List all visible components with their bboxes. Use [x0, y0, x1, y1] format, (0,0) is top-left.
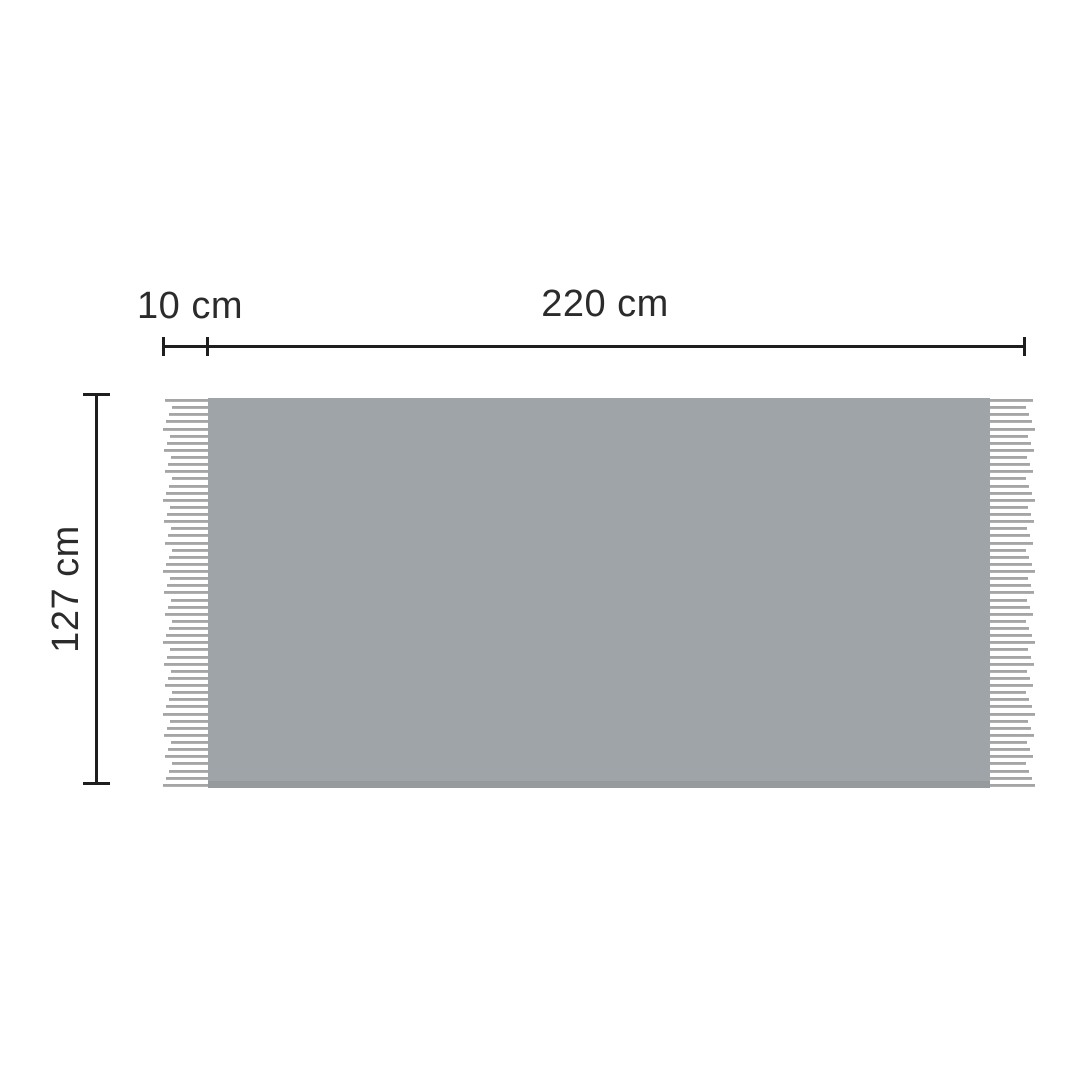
- fringe-strand: [164, 591, 208, 594]
- fringe-strand: [172, 477, 208, 480]
- fringe-strand: [990, 406, 1026, 409]
- fringe-strand: [990, 720, 1028, 723]
- fringe-strand: [990, 698, 1029, 701]
- fringe-strand: [990, 705, 1032, 708]
- blanket-fringe-right: [990, 399, 1035, 787]
- fringe-strand: [169, 556, 208, 559]
- fringe-strand: [166, 777, 208, 780]
- fringe-strand: [163, 499, 208, 502]
- fringe-width-label: 10 cm: [110, 287, 270, 325]
- fringe-strand: [172, 691, 208, 694]
- fringe-strand: [990, 606, 1030, 609]
- fringe-strand: [990, 499, 1035, 502]
- fringe-strand: [172, 406, 208, 409]
- fringe-strand: [990, 506, 1028, 509]
- fringe-strand: [990, 734, 1034, 737]
- fringe-strand: [166, 420, 208, 423]
- fringe-strand: [990, 556, 1029, 559]
- fringe-strand: [168, 534, 208, 537]
- fringe-strand: [163, 570, 208, 573]
- fringe-strand: [990, 784, 1035, 787]
- fringe-strand: [169, 770, 208, 773]
- fringe-strand: [171, 527, 208, 530]
- fringe-strand: [990, 492, 1032, 495]
- fringe-strand: [990, 542, 1033, 545]
- fringe-strand: [171, 741, 208, 744]
- fringe-strand: [990, 534, 1030, 537]
- fringe-strand: [990, 435, 1028, 438]
- fringe-strand: [990, 570, 1035, 573]
- fringe-strand: [990, 485, 1029, 488]
- fringe-strand: [166, 563, 208, 566]
- top-dimension-line: [163, 345, 1026, 348]
- fringe-strand: [990, 777, 1032, 780]
- fringe-strand: [164, 734, 208, 737]
- blanket-body: [208, 398, 990, 788]
- left-dimension-line: [95, 394, 98, 784]
- fringe-strand: [990, 663, 1034, 666]
- fringe-strand: [171, 599, 208, 602]
- fringe-strand: [167, 442, 208, 445]
- fringe-strand: [990, 677, 1030, 680]
- fringe-strand: [167, 727, 208, 730]
- fringe-strand: [166, 634, 208, 637]
- fringe-strand: [990, 513, 1031, 516]
- fringe-strand: [990, 577, 1028, 580]
- fringe-strand: [990, 713, 1035, 716]
- fringe-strand: [169, 485, 208, 488]
- fringe-strand: [990, 770, 1029, 773]
- fringe-strand: [170, 577, 208, 580]
- fringe-strand: [165, 755, 208, 758]
- fringe-strand: [990, 691, 1026, 694]
- fringe-strand: [172, 762, 208, 765]
- fringe-strand: [170, 506, 208, 509]
- height-label: 127 cm: [47, 525, 85, 653]
- fringe-strand: [171, 670, 208, 673]
- fringe-strand: [990, 520, 1034, 523]
- fringe-strand: [172, 620, 208, 623]
- fringe-strand: [165, 542, 208, 545]
- fringe-strand: [163, 784, 208, 787]
- fringe-strand: [990, 549, 1026, 552]
- blanket-fringe-left: [163, 399, 208, 787]
- fringe-strand: [170, 720, 208, 723]
- fringe-strand: [990, 591, 1034, 594]
- top-dimension-tick-fringe-boundary: [206, 337, 209, 356]
- fringe-strand: [168, 748, 208, 751]
- left-dimension-tick-bottom: [83, 782, 110, 785]
- fringe-strand: [164, 449, 208, 452]
- fringe-strand: [990, 727, 1031, 730]
- fringe-strand: [163, 641, 208, 644]
- fringe-strand: [990, 613, 1033, 616]
- body-width-label: 220 cm: [505, 285, 705, 323]
- fringe-strand: [990, 584, 1031, 587]
- fringe-strand: [165, 613, 208, 616]
- fringe-strand: [169, 698, 208, 701]
- fringe-strand: [990, 470, 1033, 473]
- fringe-strand: [990, 748, 1030, 751]
- fringe-strand: [990, 656, 1031, 659]
- fringe-strand: [990, 684, 1033, 687]
- fringe-strand: [168, 463, 208, 466]
- fringe-strand: [990, 428, 1035, 431]
- fringe-strand: [990, 620, 1026, 623]
- fringe-strand: [990, 634, 1032, 637]
- fringe-strand: [990, 762, 1026, 765]
- fringe-strand: [990, 456, 1027, 459]
- fringe-strand: [990, 755, 1033, 758]
- fringe-strand: [167, 656, 208, 659]
- fringe-strand: [990, 627, 1029, 630]
- fringe-strand: [164, 663, 208, 666]
- fringe-strand: [171, 456, 208, 459]
- fringe-strand: [170, 648, 208, 651]
- fringe-strand: [166, 492, 208, 495]
- fringe-strand: [990, 463, 1030, 466]
- fringe-strand: [169, 627, 208, 630]
- fringe-strand: [169, 413, 208, 416]
- fringe-strand: [164, 520, 208, 523]
- left-dimension-tick-top: [83, 393, 110, 396]
- fringe-strand: [990, 641, 1035, 644]
- fringe-strand: [172, 549, 208, 552]
- fringe-strand: [990, 420, 1032, 423]
- fringe-strand: [990, 563, 1032, 566]
- fringe-strand: [990, 442, 1031, 445]
- fringe-strand: [990, 599, 1027, 602]
- fringe-strand: [990, 413, 1029, 416]
- fringe-strand: [168, 677, 208, 680]
- fringe-strand: [990, 741, 1027, 744]
- blanket-dimension-diagram: 10 cm 220 cm 127 cm: [0, 0, 1080, 1080]
- fringe-strand: [990, 399, 1033, 402]
- fringe-strand: [990, 670, 1027, 673]
- fringe-strand: [167, 513, 208, 516]
- fringe-strand: [166, 705, 208, 708]
- fringe-strand: [165, 684, 208, 687]
- fringe-strand: [990, 477, 1026, 480]
- fringe-strand: [163, 713, 208, 716]
- fringe-strand: [990, 648, 1028, 651]
- fringe-strand: [165, 399, 208, 402]
- top-dimension-tick-left: [162, 337, 165, 356]
- fringe-strand: [168, 606, 208, 609]
- fringe-strand: [167, 584, 208, 587]
- fringe-strand: [990, 527, 1027, 530]
- fringe-strand: [990, 449, 1034, 452]
- top-dimension-tick-right: [1023, 337, 1026, 356]
- fringe-strand: [165, 470, 208, 473]
- fringe-strand: [170, 435, 208, 438]
- fringe-strand: [163, 428, 208, 431]
